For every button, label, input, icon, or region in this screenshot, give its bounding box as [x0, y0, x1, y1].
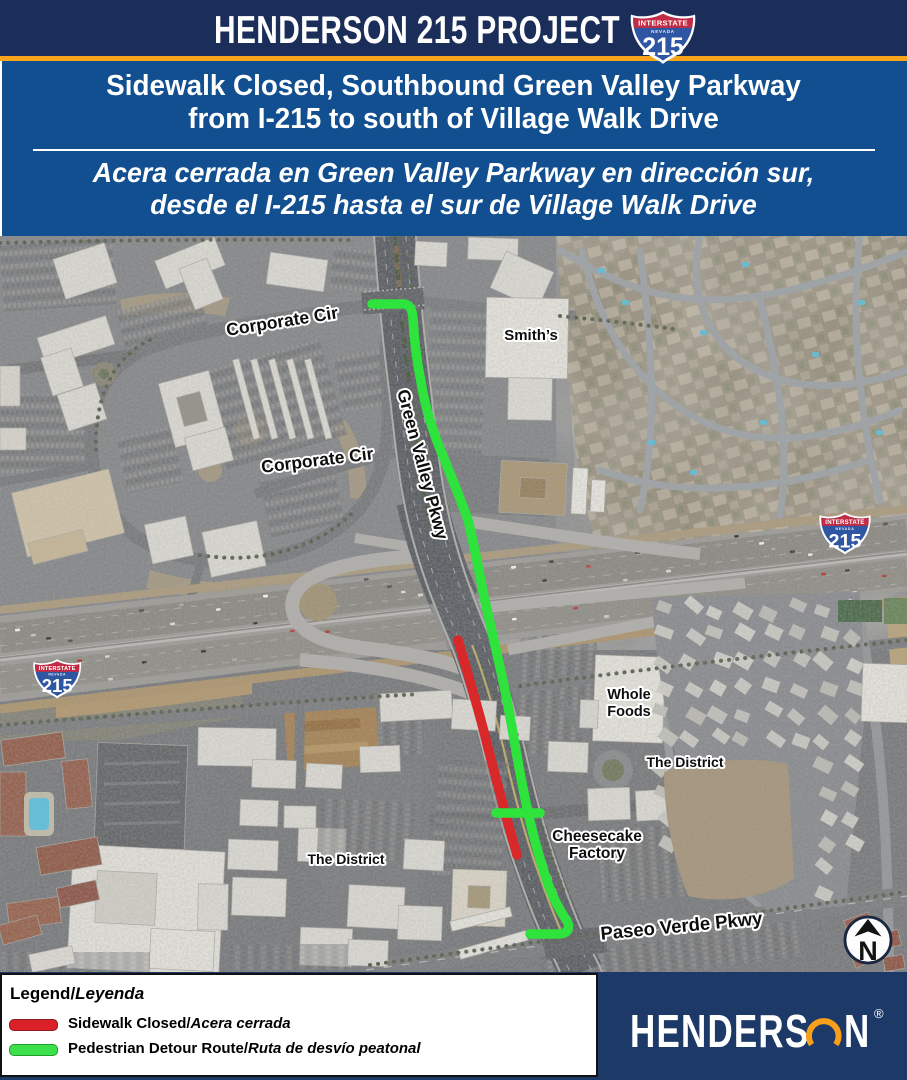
svg-text:Foods: Foods — [607, 704, 651, 720]
svg-text:Factory: Factory — [569, 845, 625, 862]
svg-text:HENDERS: HENDERS — [630, 1005, 809, 1057]
svg-text:The District: The District — [646, 754, 723, 770]
svg-text:Smith’s: Smith’s — [504, 327, 558, 344]
svg-text:Cheesecake: Cheesecake — [552, 828, 642, 845]
svg-text:N: N — [844, 1005, 869, 1057]
svg-text:Whole: Whole — [607, 687, 651, 703]
svg-text:The District: The District — [307, 851, 384, 867]
svg-text:®: ® — [874, 1006, 884, 1021]
svg-text:N: N — [858, 936, 878, 966]
